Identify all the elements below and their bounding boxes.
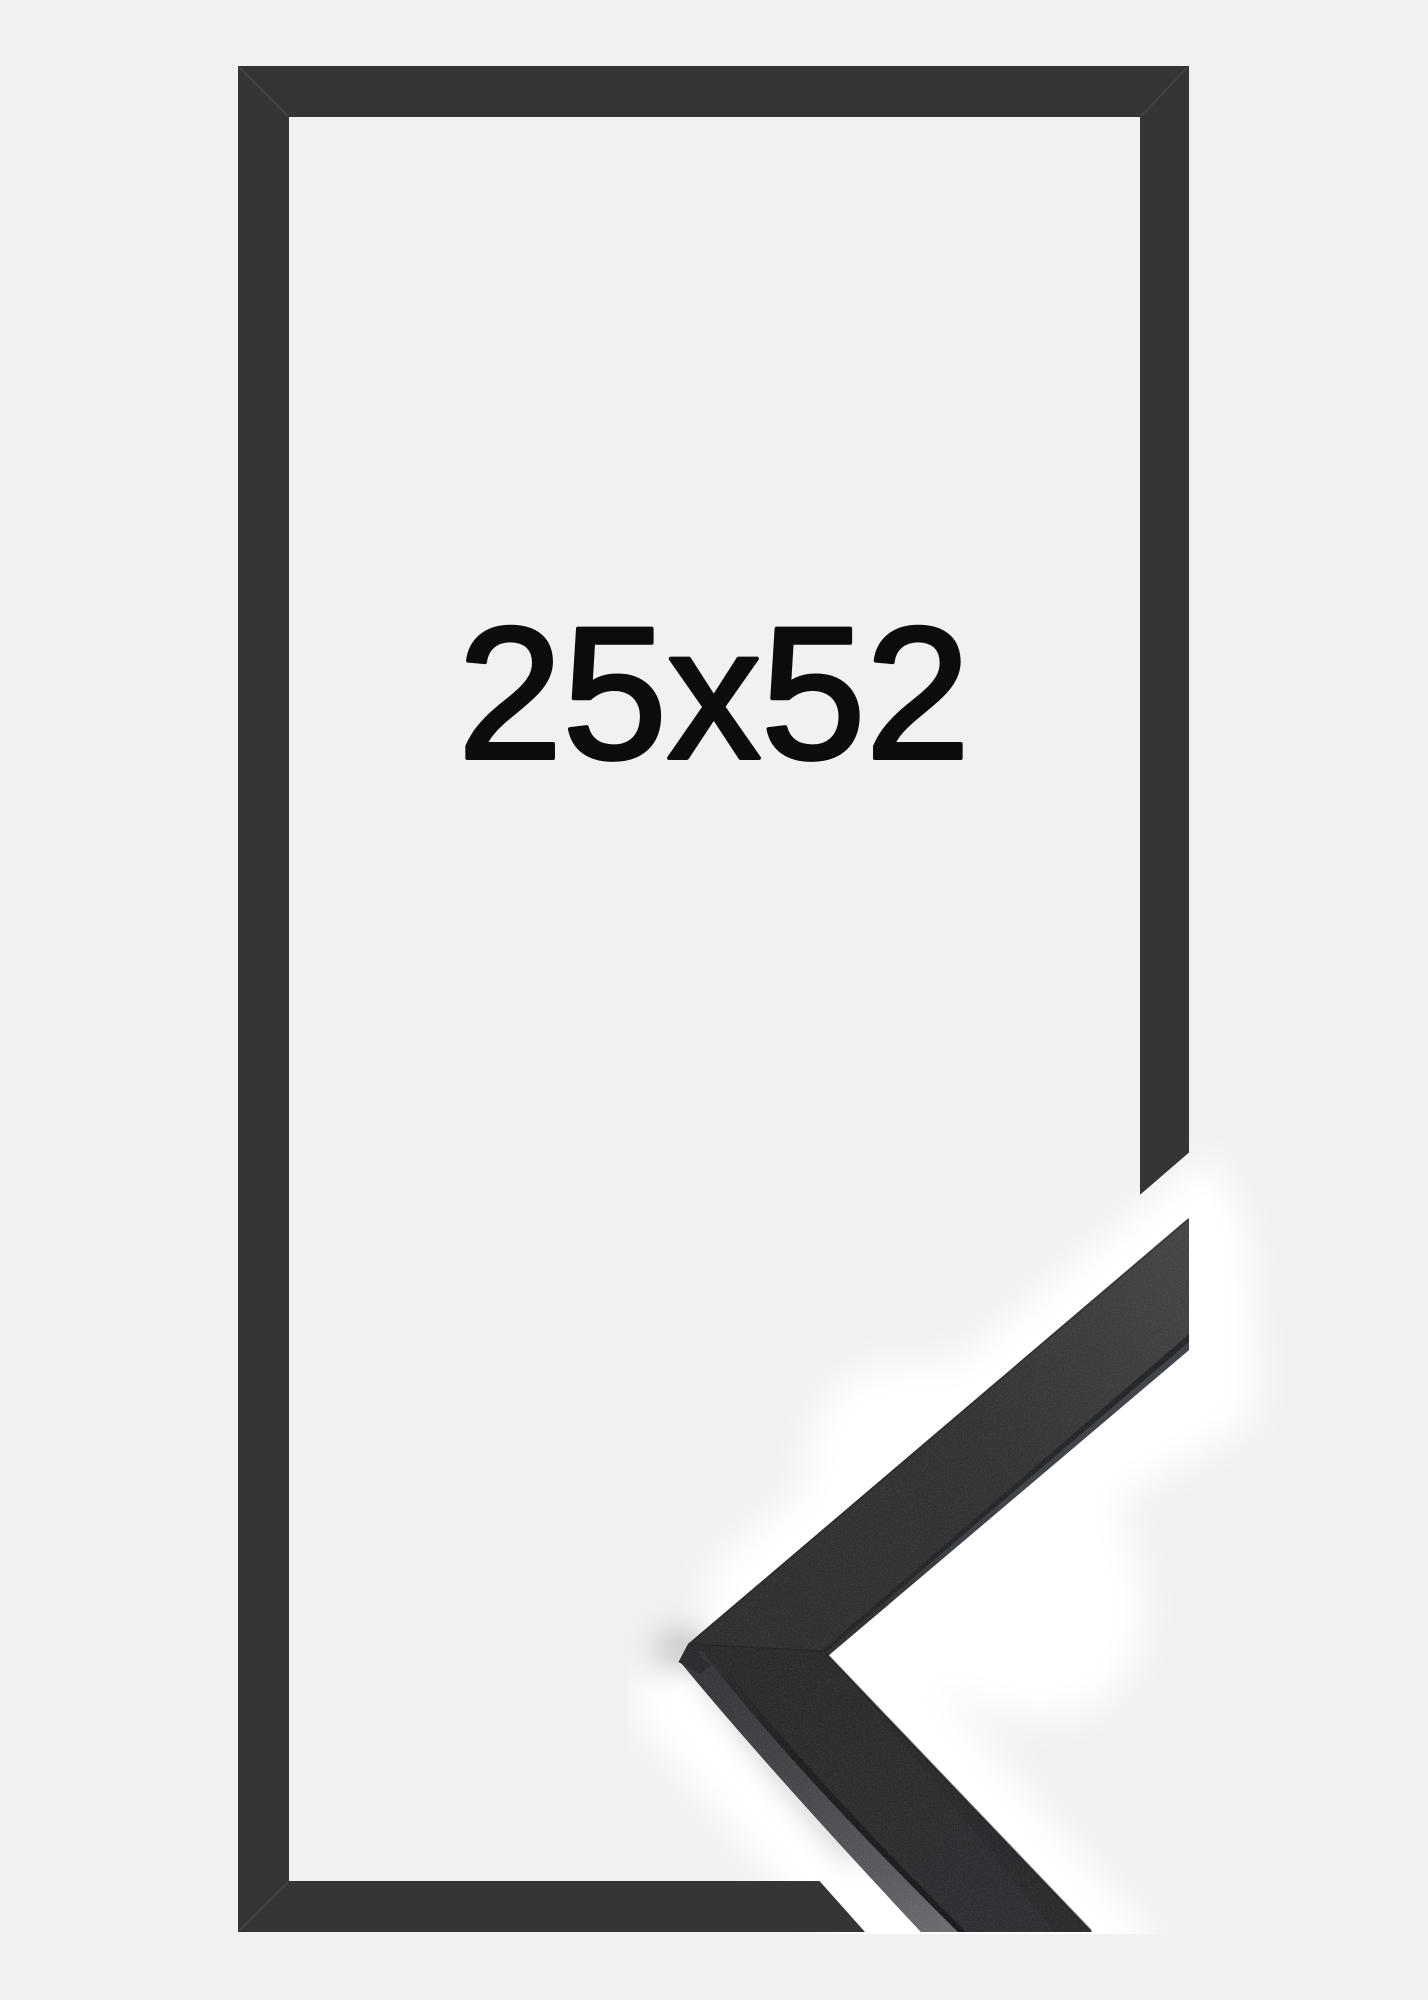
svg-text:25x52: 25x52 <box>458 588 970 798</box>
